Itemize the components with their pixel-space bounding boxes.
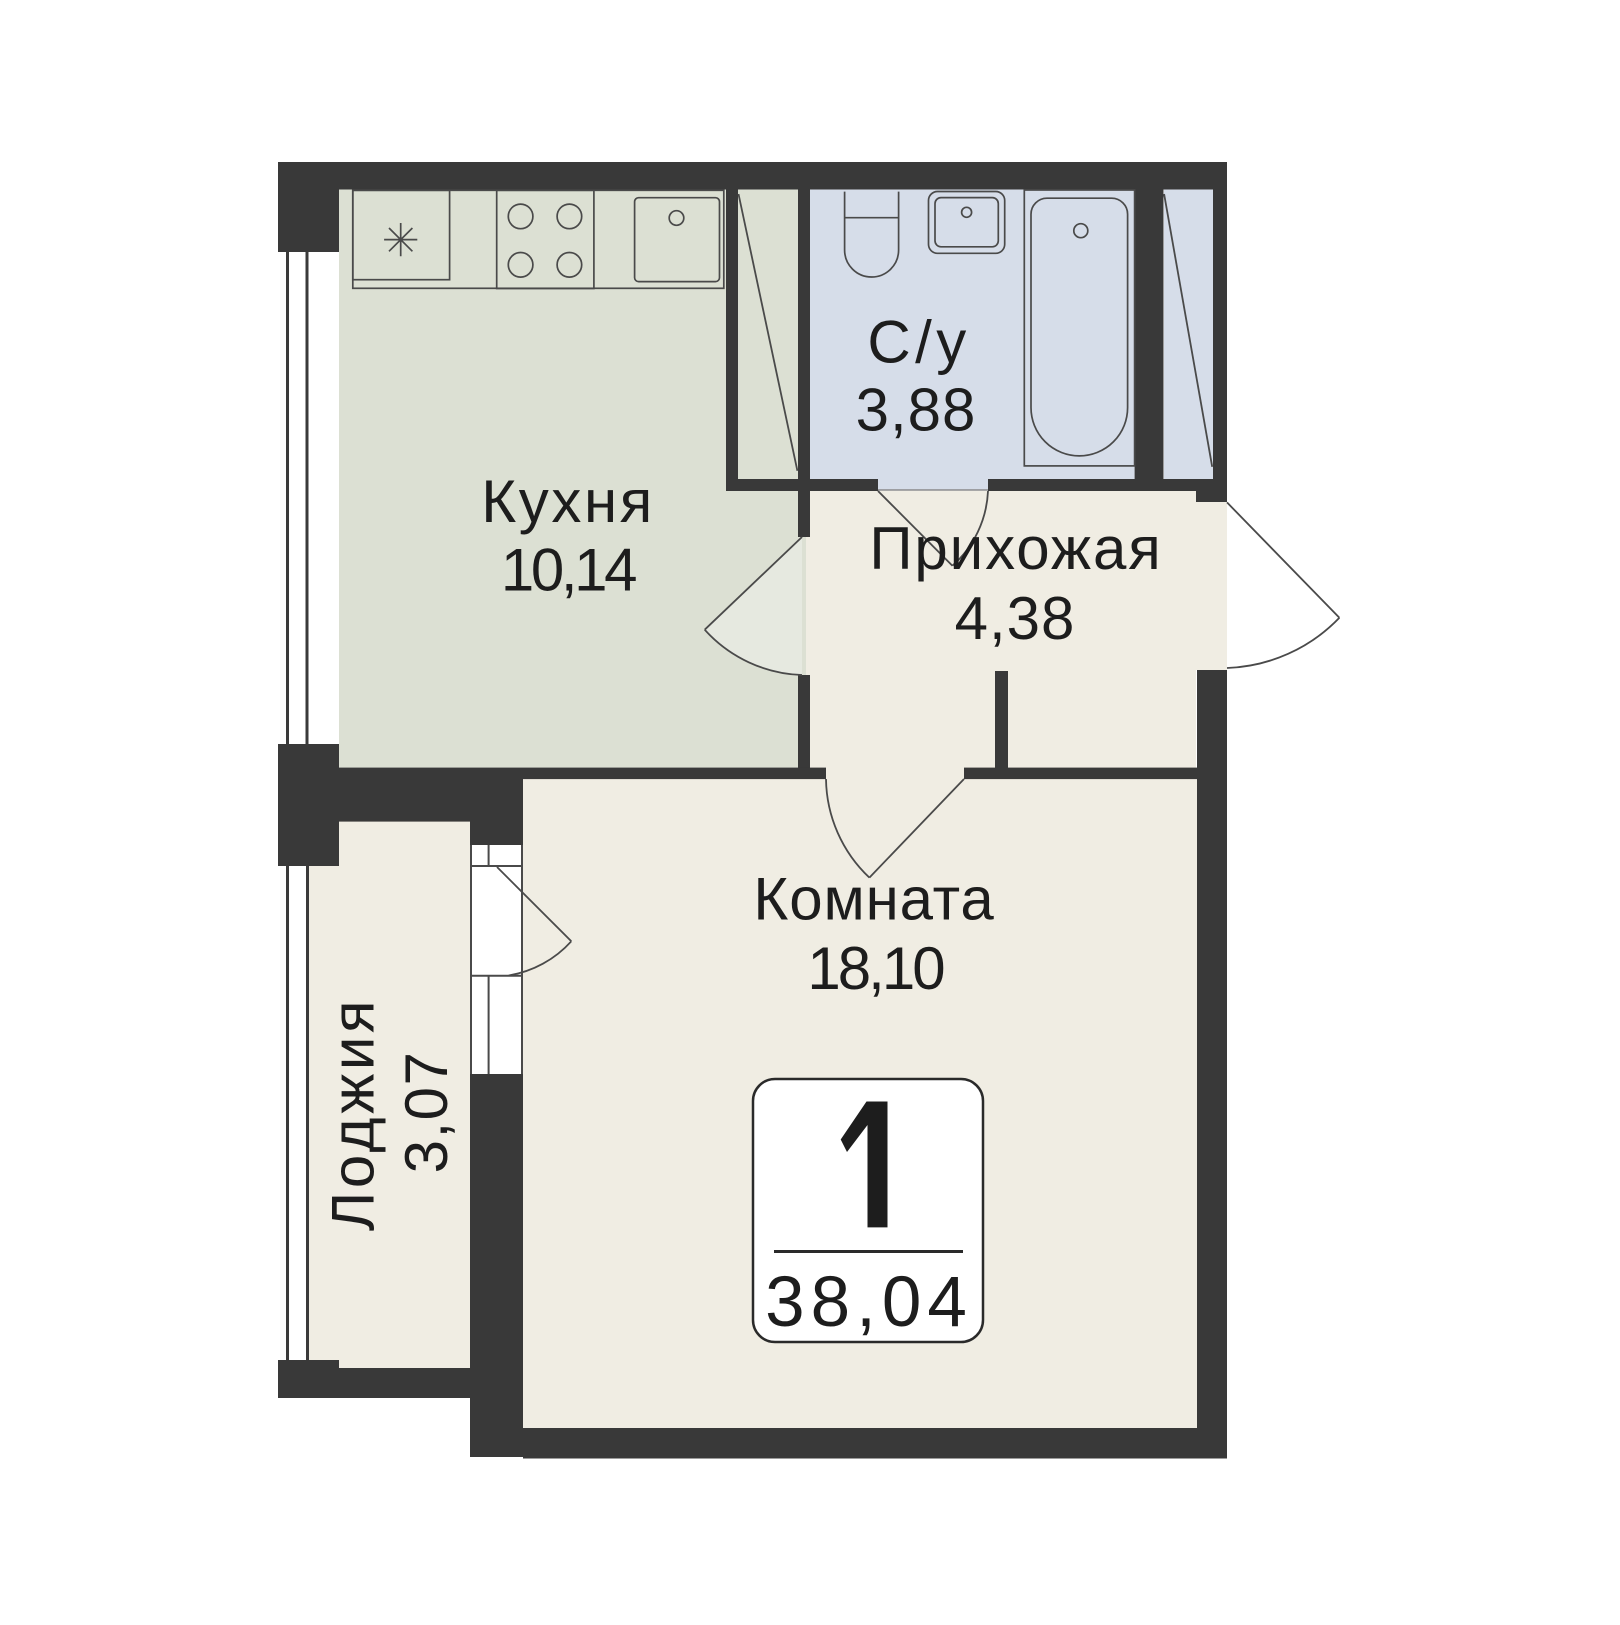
svg-text:4,38: 4,38 [955,585,1076,652]
svg-text:3,07: 3,07 [393,1051,460,1174]
svg-text:18,10: 18,10 [807,935,944,1002]
svg-text:Прихожая: Прихожая [869,515,1162,582]
svg-text:38,04: 38,04 [765,1263,973,1342]
svg-text:Кухня: Кухня [481,468,655,535]
svg-text:Лоджия: Лоджия [320,997,387,1231]
svg-text:С/у: С/у [867,309,970,376]
svg-text:3,88: 3,88 [856,376,977,443]
svg-text:Комната: Комната [753,866,994,933]
svg-text:10,14: 10,14 [501,536,636,603]
